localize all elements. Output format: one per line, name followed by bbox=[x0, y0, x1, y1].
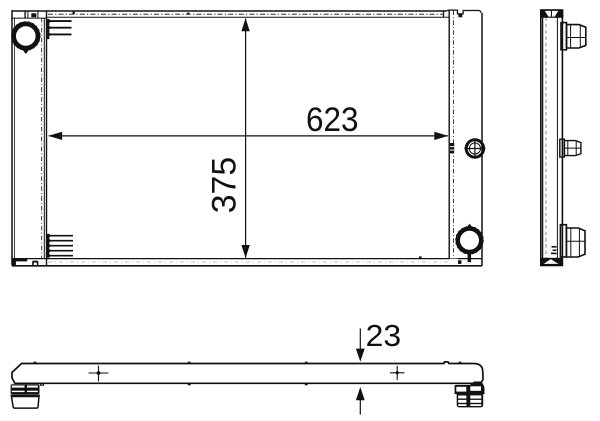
svg-text:623: 623 bbox=[306, 101, 359, 139]
svg-text:375: 375 bbox=[206, 157, 244, 214]
svg-text:23: 23 bbox=[366, 319, 402, 353]
